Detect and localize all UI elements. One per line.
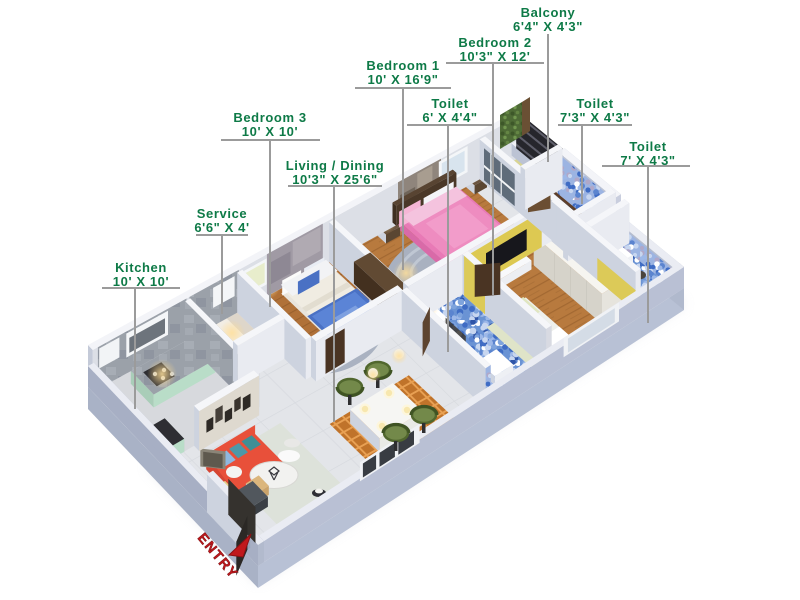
svg-text:10' X 10': 10' X 10' bbox=[113, 274, 169, 289]
svg-text:Kitchen: Kitchen bbox=[115, 260, 167, 275]
svg-text:Bedroom 1: Bedroom 1 bbox=[366, 58, 439, 73]
svg-text:6'4" X 4'3": 6'4" X 4'3" bbox=[513, 19, 583, 34]
svg-text:6' X 4'4": 6' X 4'4" bbox=[422, 110, 477, 125]
svg-text:Bedroom 2: Bedroom 2 bbox=[458, 35, 531, 50]
svg-text:Toilet: Toilet bbox=[431, 96, 468, 111]
svg-text:6'6" X 4': 6'6" X 4' bbox=[194, 220, 249, 235]
svg-text:10'3" X 12': 10'3" X 12' bbox=[460, 49, 531, 64]
svg-text:Toilet: Toilet bbox=[576, 96, 613, 111]
svg-text:10'3" X 25'6": 10'3" X 25'6" bbox=[292, 172, 378, 187]
svg-text:Service: Service bbox=[197, 206, 247, 221]
svg-text:Bedroom 3: Bedroom 3 bbox=[233, 110, 306, 125]
svg-text:Toilet: Toilet bbox=[629, 139, 666, 154]
svg-text:Balcony: Balcony bbox=[521, 5, 576, 20]
svg-text:Living / Dining: Living / Dining bbox=[286, 158, 385, 173]
svg-text:10' X 16'9": 10' X 16'9" bbox=[368, 72, 439, 87]
svg-text:7' X 4'3": 7' X 4'3" bbox=[620, 153, 675, 168]
svg-text:10' X 10': 10' X 10' bbox=[242, 124, 298, 139]
svg-text:7'3" X 4'3": 7'3" X 4'3" bbox=[560, 110, 630, 125]
